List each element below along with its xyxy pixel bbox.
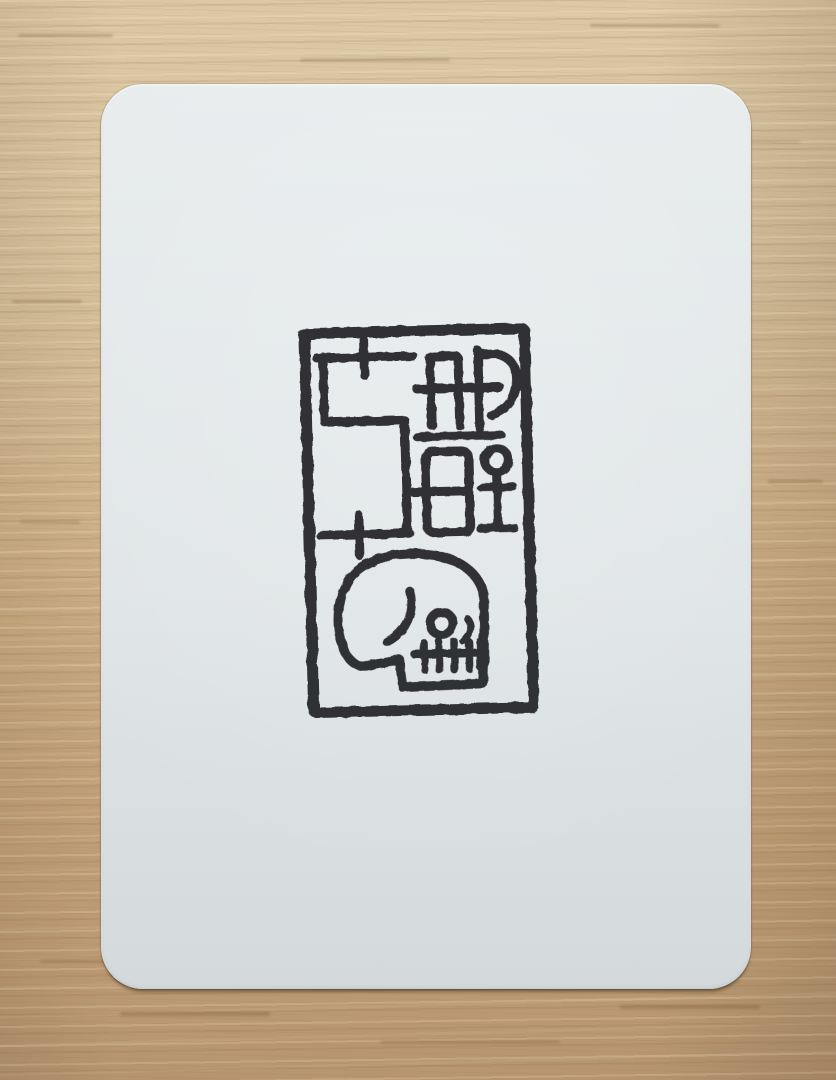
photograph: [0, 0, 836, 1080]
photo-vignette: [0, 0, 836, 1080]
